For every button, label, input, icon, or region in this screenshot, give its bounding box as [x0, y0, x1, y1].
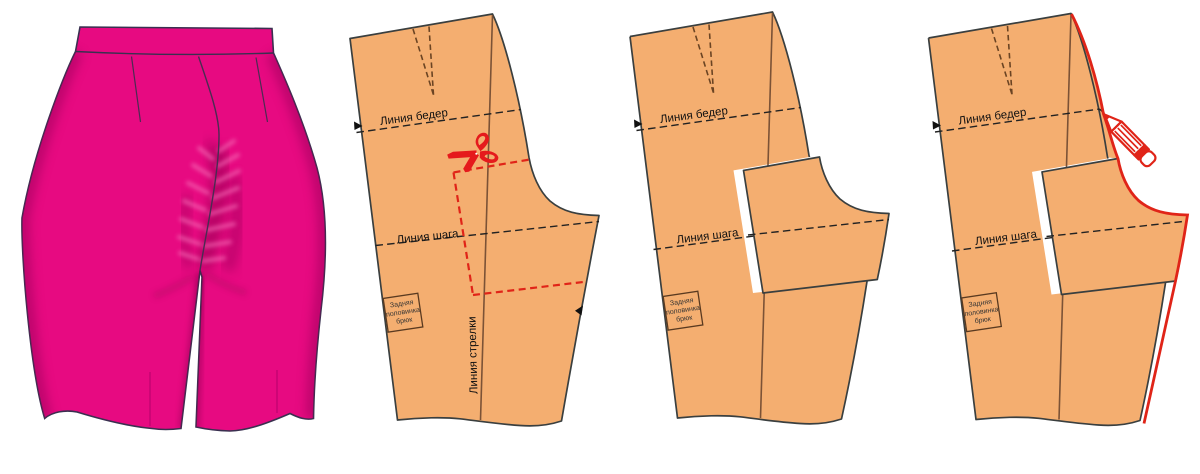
- svg-text:Линия стрелки: Линия стрелки: [466, 316, 480, 394]
